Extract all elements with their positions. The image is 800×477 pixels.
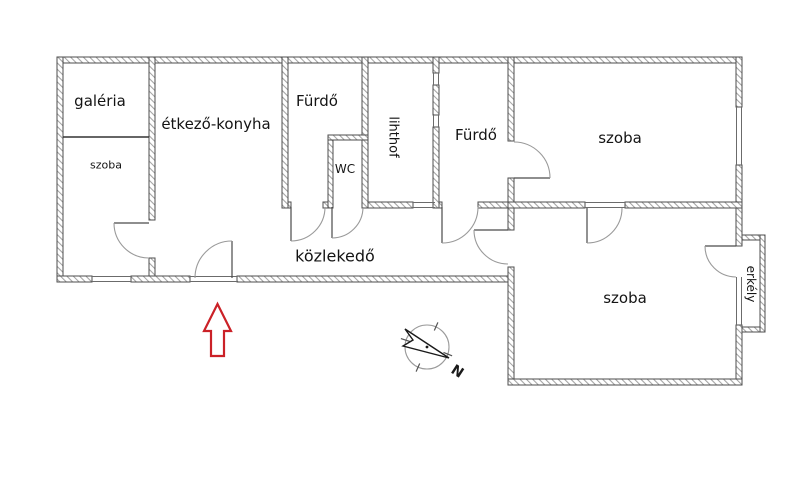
room-label-kozlekedo: közlekedő [295, 247, 375, 266]
door-swing-balcony [705, 246, 736, 277]
door-swing [587, 208, 622, 243]
room-label-erkely: erkély [744, 266, 758, 303]
door-swing [114, 223, 149, 258]
room-label-wc: WC [335, 162, 355, 176]
door-swing [514, 142, 550, 178]
window [737, 277, 742, 325]
window [434, 73, 439, 85]
doors [114, 142, 736, 278]
room-label-galeria: galéria [74, 92, 126, 110]
floor-plan-drawing: N [0, 0, 800, 477]
room-label-etkezo-konyha: étkező-konyha [161, 115, 270, 133]
entrance-threshold [190, 277, 237, 282]
compass-north-label: N [448, 362, 467, 382]
door-swing [442, 207, 478, 243]
door-threshold [585, 203, 625, 208]
window [737, 107, 742, 165]
room-label-furdo-1: Fürdő [296, 92, 338, 110]
room-label-szoba-top: szoba [598, 129, 642, 147]
compass-needle [403, 329, 449, 358]
window [413, 203, 435, 208]
windows [92, 73, 742, 325]
floor-plan: N galéria szoba étkező-konyha Fürdő WC l… [0, 0, 800, 477]
door-swing [332, 207, 363, 238]
room-label-lihthof: lihthof [386, 116, 401, 157]
window [92, 277, 131, 282]
entrance-arrow-icon [204, 304, 231, 356]
door-swing [291, 207, 325, 241]
door-swing [474, 230, 508, 264]
compass-rose-icon: N [401, 322, 466, 381]
window [434, 115, 439, 127]
room-label-szoba-left: szoba [90, 159, 122, 172]
room-label-szoba-bottom: szoba [603, 289, 647, 307]
room-label-furdo-2: Fürdő [455, 126, 497, 144]
door-swing-entrance [195, 241, 232, 278]
